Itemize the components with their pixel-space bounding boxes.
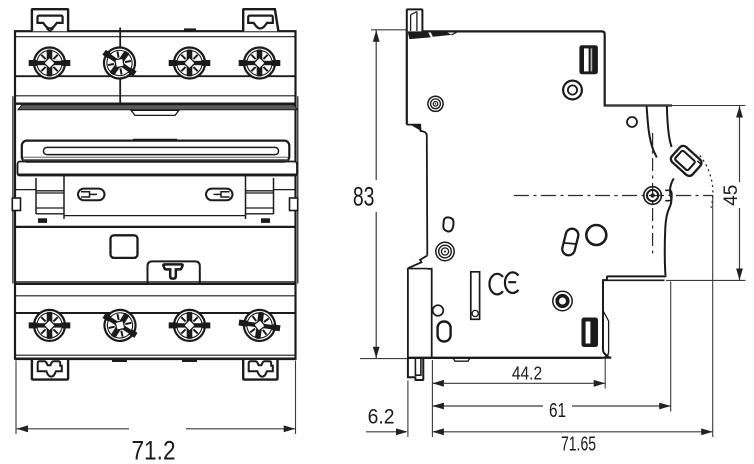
svg-text:45: 45 — [721, 185, 742, 206]
svg-text:83: 83 — [353, 181, 375, 211]
svg-text:6.2: 6.2 — [368, 404, 395, 428]
svg-text:71.65: 71.65 — [561, 432, 596, 455]
svg-text:71.2: 71.2 — [131, 436, 175, 464]
svg-text:61: 61 — [549, 399, 566, 422]
svg-text:44.2: 44.2 — [512, 363, 542, 384]
